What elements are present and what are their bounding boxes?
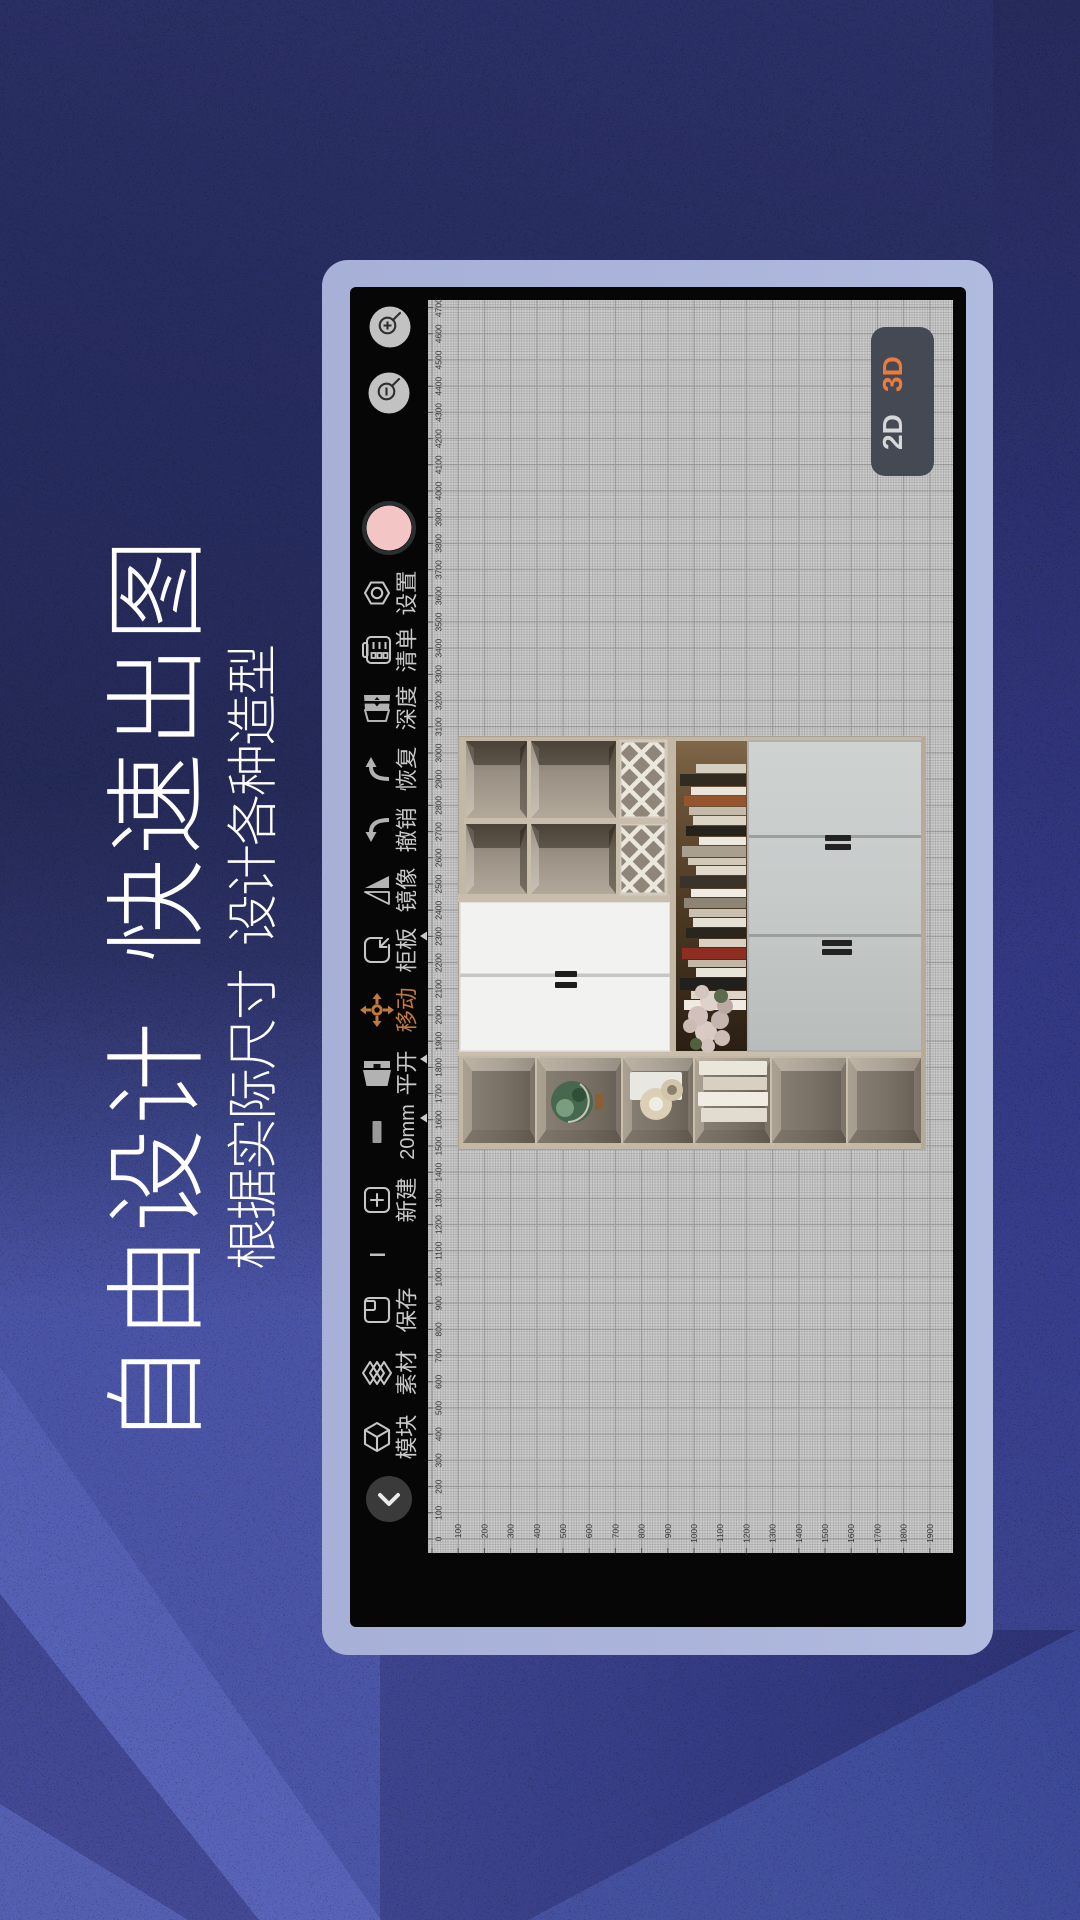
svg-text:20mm: 20mm [397,1104,419,1160]
